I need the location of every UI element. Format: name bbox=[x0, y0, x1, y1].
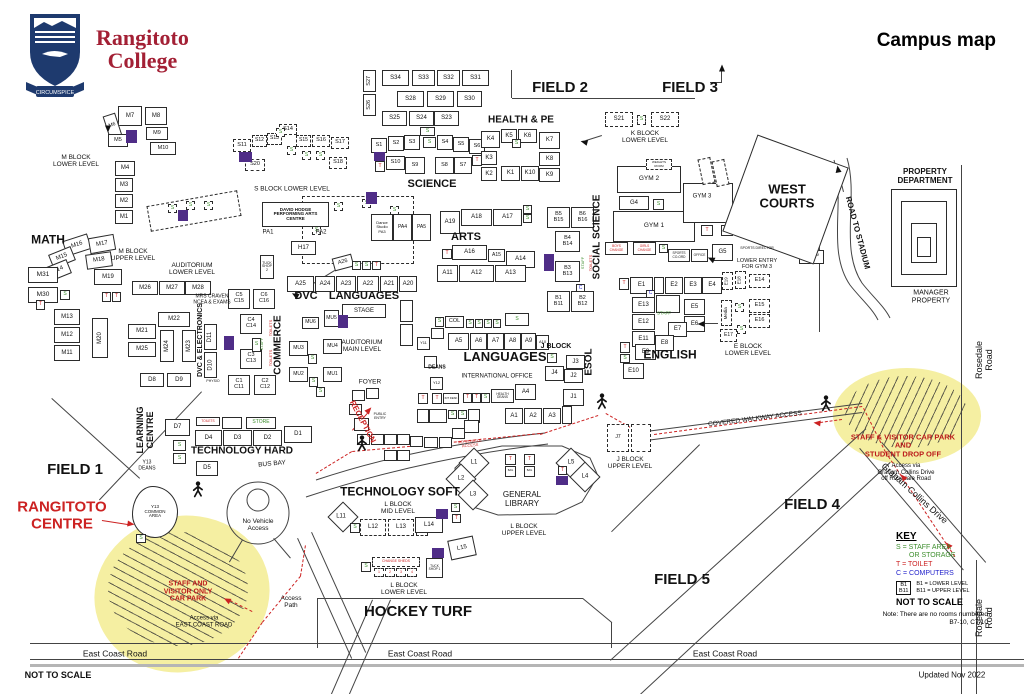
room-s: S bbox=[316, 151, 325, 160]
room-s: S bbox=[505, 313, 529, 326]
room-s: S bbox=[737, 325, 746, 334]
room-s: S bbox=[493, 319, 501, 328]
room-a13: A13 bbox=[495, 265, 526, 282]
room-m2: M2 bbox=[115, 194, 133, 208]
room-s22: S22 bbox=[651, 112, 679, 127]
room-mu3: MU3 bbox=[289, 341, 308, 356]
label-l-block-lower-level: L BLOCK LOWER LEVEL bbox=[381, 582, 427, 596]
room-s: S bbox=[458, 410, 467, 419]
room-c4-c14: C4 C14 bbox=[240, 314, 262, 334]
room-d11: D11 bbox=[204, 324, 217, 350]
label-staff: STAFF bbox=[260, 338, 264, 350]
road-line bbox=[30, 659, 1024, 660]
label-field-2: FIELD 2 bbox=[532, 80, 588, 97]
room-a2: A2 bbox=[524, 408, 542, 424]
room-a12: A12 bbox=[459, 265, 494, 282]
room-bag: BAG bbox=[524, 466, 535, 477]
room-a17: A17 bbox=[493, 209, 522, 226]
key-lower: B1 = LOWER LEVEL bbox=[916, 581, 968, 587]
room-y11: Y11 bbox=[417, 337, 430, 350]
label-k-block-lower-level: K BLOCK LOWER LEVEL bbox=[622, 130, 668, 144]
room-mu4: MU4 bbox=[323, 339, 342, 354]
room-t: T bbox=[620, 342, 630, 353]
room-l13: L13 bbox=[388, 519, 414, 536]
room-s: S bbox=[653, 199, 664, 210]
school-logo: CIRCUMSPICE Rangitoto College bbox=[24, 10, 189, 102]
label-arts: ARTS bbox=[451, 231, 481, 243]
room-c2-c12: C2 C12 bbox=[254, 375, 276, 395]
room-s: S bbox=[309, 377, 318, 387]
room-s26: S26 bbox=[363, 94, 376, 116]
room-s: S bbox=[481, 393, 490, 403]
room-e5: E5 bbox=[684, 299, 705, 315]
label-not-to-scale: NOT TO SCALE bbox=[25, 671, 92, 681]
room-t: T bbox=[701, 225, 713, 236]
room-s3: S3 bbox=[404, 135, 420, 150]
label-j-block-upper-level: J BLOCK UPPER LEVEL bbox=[608, 456, 652, 470]
room-d3: D3 bbox=[223, 430, 252, 446]
room-media: Media bbox=[721, 300, 732, 326]
label-s-block-lower-level: S BLOCK LOWER LEVEL bbox=[254, 185, 330, 192]
road-line bbox=[704, 323, 718, 324]
room-d9: D9 bbox=[167, 373, 191, 387]
room-d1: D1 bbox=[284, 426, 312, 443]
room-4: 4 bbox=[407, 568, 417, 577]
room-dance-studio-pa3: Dance Studio PA3 bbox=[371, 214, 393, 241]
label-east-coast-road: East Coast Road bbox=[693, 649, 757, 658]
room-s34: S34 bbox=[382, 70, 409, 86]
label-english: ENGLISH bbox=[643, 348, 696, 361]
road-line bbox=[512, 98, 695, 99]
room-k7: K7 bbox=[539, 132, 560, 149]
room-s: S bbox=[659, 244, 668, 253]
room-m25: M25 bbox=[128, 342, 156, 357]
room-girls-change: GIRLS CHANGE bbox=[633, 242, 656, 255]
lift-marker bbox=[374, 152, 385, 161]
label-field-1: FIELD 1 bbox=[47, 462, 103, 479]
road-line bbox=[317, 598, 318, 648]
room-m3: M3 bbox=[115, 178, 133, 192]
room-t: T bbox=[36, 300, 45, 310]
room-m4: M4 bbox=[115, 161, 135, 176]
room-s27: S27 bbox=[363, 70, 376, 92]
building-box bbox=[562, 406, 572, 424]
label-deans: DEANS bbox=[428, 365, 446, 371]
label-rangitoto-centre: RANGITOTO CENTRE bbox=[17, 500, 106, 533]
building-box bbox=[222, 417, 242, 429]
room-m22: M22 bbox=[158, 312, 190, 327]
label-l5: L5 bbox=[568, 460, 575, 467]
room-boys-change: BOYS CHANGE bbox=[605, 242, 628, 255]
label-y13-deans: Y13 DEANS bbox=[138, 461, 155, 472]
key-toilet: T = TOILET bbox=[896, 561, 998, 570]
room-t: T bbox=[442, 249, 452, 259]
label-math: MATH bbox=[31, 233, 65, 246]
label-auditorium-lower-level: AUDITORIUM LOWER LEVEL bbox=[169, 262, 215, 276]
room-s15: S15 bbox=[296, 135, 311, 147]
room-mu5: MU5 bbox=[324, 310, 339, 327]
room-e2: E2 bbox=[665, 277, 683, 294]
room-s: S bbox=[352, 261, 361, 270]
label-staff-and-visitor-only-car-park: STAFF AND VISITOR ONLY CAR PARK bbox=[164, 580, 213, 603]
room-a4: A4 bbox=[515, 384, 536, 400]
room-s21: S21 bbox=[605, 112, 633, 127]
room-s: S bbox=[308, 354, 317, 364]
lift-marker bbox=[436, 509, 448, 519]
room-s12: S12 bbox=[252, 135, 267, 147]
campus-map-canvas: CIRCUMSPICE Rangitoto College Campus map… bbox=[0, 0, 1024, 694]
room-s: S bbox=[287, 146, 296, 155]
label-sports-director: SPORTS DIRECTOR bbox=[740, 247, 774, 251]
label-staff-visitor-car-park-and-student-drop-off: STAFF & VISITOR CAR PARK AND STUDENT DRO… bbox=[851, 434, 955, 459]
room-a15: A15 bbox=[488, 249, 505, 262]
building-box bbox=[464, 420, 479, 433]
room-mu6: MU6 bbox=[302, 317, 319, 329]
room-2: 2 bbox=[385, 568, 395, 577]
room-g5: G5 bbox=[712, 244, 733, 261]
room-s16: S16 bbox=[312, 135, 330, 147]
room-e3: E3 bbox=[684, 277, 702, 294]
key-not-to-scale: NOT TO SCALE bbox=[896, 597, 998, 608]
room-s2: S2 bbox=[388, 136, 404, 151]
room-m11: M11 bbox=[54, 345, 80, 361]
room-health-deans: HEALTH DEANS bbox=[491, 389, 514, 403]
label-manager-property: MANAGER PROPERTY bbox=[912, 289, 950, 304]
room-a9: A9 bbox=[521, 333, 536, 350]
room-a16: A16 bbox=[452, 245, 487, 260]
building-box bbox=[384, 434, 397, 445]
room-t: T bbox=[102, 292, 111, 302]
label-international-office: INTERNATIONAL OFFICE bbox=[461, 374, 532, 381]
room-s4: S4 bbox=[437, 135, 453, 150]
arrow-icon bbox=[127, 521, 135, 528]
room-t: T bbox=[619, 278, 629, 290]
room-s: S bbox=[435, 317, 444, 327]
label-field-5: FIELD 5 bbox=[654, 572, 710, 589]
room-pa4: PA4 bbox=[393, 214, 412, 241]
label-field-4: FIELD 4 bbox=[784, 497, 840, 514]
label-rosedale-road: Rosedale Road bbox=[975, 341, 995, 380]
label-auditorium-main-level: AUDITORIUM MAIN LEVEL bbox=[341, 339, 382, 353]
room-t: T bbox=[558, 466, 567, 475]
building-box bbox=[631, 424, 651, 452]
label-staff: STAFF bbox=[657, 312, 671, 317]
room-change-sheds: CHANGE SHEDS bbox=[372, 557, 420, 567]
room-c1-c11: C1 C11 bbox=[228, 375, 250, 395]
room-s: S bbox=[475, 319, 483, 328]
label-access-path: Access Path bbox=[281, 595, 302, 609]
label-languages: LANGUAGES bbox=[463, 350, 546, 364]
room-s29: S29 bbox=[427, 91, 454, 107]
room-store: STORE bbox=[246, 417, 276, 429]
pedestrian-icon bbox=[192, 481, 205, 503]
room-s: S bbox=[334, 202, 343, 211]
room-a11: A11 bbox=[437, 265, 458, 282]
label-languages: LANGUAGES bbox=[329, 290, 399, 302]
room-int-desk: INT DESK bbox=[443, 393, 459, 404]
building-box bbox=[384, 450, 397, 461]
arrow-icon bbox=[105, 126, 111, 133]
label-l1: L1 bbox=[471, 460, 478, 467]
room-s24: S24 bbox=[409, 111, 434, 126]
room-s: S bbox=[361, 562, 371, 572]
building-box bbox=[400, 300, 413, 322]
room-s33: S33 bbox=[412, 70, 435, 86]
crest-motto: CIRCUMSPICE bbox=[36, 90, 75, 96]
room-c5-c15: C5 C15 bbox=[228, 289, 250, 309]
room-e17: E17 bbox=[720, 329, 737, 342]
room-m8: M8 bbox=[145, 107, 167, 125]
room-s1: S1 bbox=[371, 138, 387, 153]
room-sports-co-ord: SPORTS CO-ORD bbox=[668, 249, 690, 262]
room-s: S bbox=[735, 303, 744, 312]
room-s25: S25 bbox=[382, 111, 407, 126]
key-staff: S = STAFF AREA bbox=[896, 544, 998, 553]
room-s28: S28 bbox=[397, 91, 424, 107]
label-toilets: TOILETS bbox=[589, 255, 593, 272]
room-pa5: PA5 bbox=[412, 214, 431, 241]
label-mrs-craven-ncea-exams: MRS CRAVEN NCEA & EXAMS bbox=[193, 295, 230, 306]
label-technology-soft: TECHNOLOGY SOFT bbox=[340, 485, 460, 498]
label-west-courts: WEST COURTS bbox=[760, 183, 815, 212]
label-j-block: J BLOCK bbox=[541, 343, 572, 351]
label-commerce: COMMERCE bbox=[273, 315, 284, 374]
label-learning-centre: LEARNING CENTRE bbox=[136, 407, 156, 454]
room-a1: A1 bbox=[505, 408, 523, 424]
room-m23: M23 bbox=[182, 330, 196, 362]
label-pa1: PA1 bbox=[263, 230, 274, 237]
label-pa2: PA2 bbox=[316, 230, 327, 237]
room-s: S bbox=[423, 137, 436, 148]
room-l14: L14 bbox=[415, 517, 443, 533]
room-m20: M20 bbox=[92, 318, 108, 358]
building-box bbox=[397, 450, 410, 461]
room-k3: K3 bbox=[481, 151, 497, 165]
label-field-3: FIELD 3 bbox=[662, 80, 718, 97]
room-t: T bbox=[372, 261, 381, 270]
room-m9: M9 bbox=[146, 127, 168, 140]
room-t: T bbox=[505, 454, 516, 465]
building-box bbox=[683, 183, 733, 223]
room-s: S bbox=[451, 503, 460, 512]
room-s: S bbox=[466, 319, 474, 328]
room-g4: G4 bbox=[619, 196, 649, 210]
room-mu2: MU2 bbox=[289, 367, 308, 382]
lift-marker bbox=[544, 254, 554, 271]
pedestrian-icon bbox=[356, 435, 369, 457]
room-1: 1 bbox=[374, 568, 384, 577]
label-technology-hard: TECHNOLOGY HARD bbox=[191, 446, 293, 457]
lift-marker bbox=[126, 130, 137, 143]
label-foyer: FOYER bbox=[359, 378, 381, 385]
building-box bbox=[366, 388, 379, 399]
room-e15: E15 bbox=[749, 299, 770, 313]
label-l4: L4 bbox=[582, 474, 589, 481]
key-level-box: B1B11 bbox=[896, 581, 911, 595]
building-box bbox=[431, 328, 444, 339]
room-m21: M21 bbox=[128, 324, 156, 339]
room-s10: S10 bbox=[386, 156, 405, 170]
room-m7: M7 bbox=[118, 106, 142, 126]
room-t: T bbox=[463, 393, 472, 403]
map-key: KEY S = STAFF AREA OR STORAGE T = TOILET… bbox=[868, 531, 998, 627]
room-s: S bbox=[136, 534, 146, 543]
room-b1-b11: B1 B11 bbox=[547, 291, 570, 312]
room-s17: S17 bbox=[331, 137, 349, 149]
lift-marker bbox=[178, 210, 188, 221]
road-line bbox=[721, 71, 722, 82]
room-b4-b14: B4 B14 bbox=[555, 231, 580, 252]
lift-marker bbox=[224, 336, 234, 350]
room-david-hodge-performing-arts-centre: DAVID HODGE PERFORMING ARTS CENTRE bbox=[262, 202, 329, 227]
building-box bbox=[654, 277, 664, 294]
bus-bay-roundabout bbox=[227, 482, 289, 544]
room-s: S bbox=[173, 440, 186, 451]
room-s8: S8 bbox=[435, 157, 454, 174]
label-l3: L3 bbox=[470, 492, 477, 499]
room-c3-c13: C3 C13 bbox=[240, 349, 262, 369]
room-d5: D5 bbox=[196, 461, 218, 476]
label-no-vehicle-access: No Vehicle Access bbox=[242, 518, 273, 532]
room-t: T bbox=[418, 393, 428, 404]
room-s: S bbox=[512, 139, 521, 148]
room-t: T bbox=[472, 393, 481, 403]
room-a5: A5 bbox=[448, 333, 469, 350]
lift-marker bbox=[338, 315, 348, 328]
lift-marker bbox=[556, 476, 568, 485]
key-upper: B11 = UPPER LEVEL bbox=[916, 588, 969, 594]
room-a20: A20 bbox=[399, 276, 417, 292]
room-m10: M10 bbox=[150, 142, 176, 155]
label-lower-entry-for-gym-3: LOWER ENTRY FOR GYM 3 bbox=[737, 258, 777, 270]
room-k2: K2 bbox=[481, 167, 497, 181]
room-k10: K10 bbox=[521, 166, 539, 181]
room-y12: Y12 bbox=[430, 377, 443, 390]
room-k4: K4 bbox=[481, 131, 500, 148]
room-s9: S9 bbox=[405, 157, 425, 174]
room-s: S bbox=[173, 453, 186, 464]
room-s: S bbox=[620, 354, 630, 363]
room-m1: M1 bbox=[115, 210, 133, 224]
room-s23: S23 bbox=[434, 111, 459, 126]
label-m-block-lower-level: M BLOCK LOWER LEVEL bbox=[53, 154, 99, 168]
room-col: COL bbox=[445, 316, 464, 328]
room-a8: A8 bbox=[504, 333, 521, 350]
room-s: S bbox=[350, 523, 360, 533]
room-b2-b12: B2 B12 bbox=[571, 291, 594, 312]
arrow-icon bbox=[698, 321, 705, 327]
room-y13-common-area: Y13 COMMON AREA bbox=[132, 486, 178, 538]
room-s: S bbox=[523, 205, 532, 214]
building-box bbox=[410, 436, 423, 447]
road-line bbox=[30, 664, 1024, 667]
room-s: S bbox=[186, 201, 195, 210]
lift-marker bbox=[239, 152, 252, 162]
building-box bbox=[400, 324, 413, 346]
room-j1: J1 bbox=[563, 389, 584, 406]
room-a18: A18 bbox=[461, 209, 492, 226]
road-line bbox=[511, 70, 512, 98]
room-s: S bbox=[276, 128, 285, 137]
room-s: S bbox=[302, 151, 311, 160]
label-physio: PHYSIO bbox=[206, 380, 219, 384]
label-l11: L11 bbox=[336, 514, 346, 521]
room-e16: E16 bbox=[749, 314, 770, 328]
building-box bbox=[417, 409, 429, 423]
label-updated-nov-2022: Updated Nov 2022 bbox=[919, 672, 986, 681]
arrow-icon bbox=[834, 165, 841, 173]
room-s: S bbox=[204, 201, 213, 210]
label-gym-3: GYM 3 bbox=[693, 194, 712, 201]
room-s: S bbox=[420, 127, 435, 136]
label-public-entry: PUBLIC ENTRY bbox=[374, 413, 387, 421]
school-name: Rangitoto College bbox=[96, 26, 189, 102]
room-a7: A7 bbox=[487, 333, 504, 350]
room-3: 3 bbox=[396, 568, 406, 577]
road-line bbox=[30, 643, 1010, 644]
room-e4: E4 bbox=[702, 277, 722, 294]
arrow-icon bbox=[813, 420, 821, 427]
room-tuck-shop-1: TUCK SHOP 1 bbox=[426, 558, 443, 578]
label-esol: ESOL bbox=[584, 348, 595, 375]
room-b3-b13: B3 B13 bbox=[555, 261, 580, 282]
room-s: S bbox=[316, 387, 325, 397]
room-m26: M26 bbox=[132, 281, 158, 295]
room-s5: S5 bbox=[453, 137, 469, 152]
room-bag: BAG bbox=[505, 466, 516, 477]
label-l2: L2 bbox=[458, 476, 465, 483]
room-t: T bbox=[524, 454, 535, 465]
label-hockey-turf: HOCKEY TURF bbox=[364, 604, 472, 621]
room-h17: H17 bbox=[291, 241, 316, 255]
room-d4: D4 bbox=[195, 430, 222, 446]
room-e13: E13 bbox=[632, 297, 655, 313]
label-access-via-graham-collins-drive-off-rosedale-road: Access via Graham Collins Drive off Rose… bbox=[877, 463, 934, 483]
room-e19: E19 bbox=[722, 272, 733, 290]
room-k9: K9 bbox=[539, 168, 560, 182]
room-t: T bbox=[452, 514, 461, 523]
room-t: T bbox=[112, 292, 121, 302]
key-storage: OR STORAGE bbox=[896, 552, 998, 561]
room-s32: S32 bbox=[437, 70, 460, 86]
label-l-block-mid-level: L BLOCK MID LEVEL bbox=[381, 501, 415, 515]
room-m5: M5 bbox=[108, 134, 128, 147]
label-science: SCIENCE bbox=[408, 178, 457, 190]
room-e10: E10 bbox=[623, 363, 644, 379]
room-m24: M24 bbox=[160, 330, 174, 362]
pedestrian-icon bbox=[596, 393, 609, 415]
label-general-library: GENERAL LIBRARY bbox=[503, 491, 541, 509]
room-j2: J2 bbox=[564, 369, 583, 383]
label-east-coast-road: East Coast Road bbox=[388, 649, 452, 658]
building-box bbox=[397, 434, 410, 445]
page-title: Campus map bbox=[877, 30, 996, 52]
label-access-via-east-coast-road: Access via EAST COAST ROAD bbox=[176, 615, 233, 628]
arrow-icon bbox=[719, 65, 725, 72]
room-s: S bbox=[362, 261, 371, 270]
lift-marker bbox=[366, 192, 377, 204]
room-j4: J4 bbox=[545, 366, 564, 381]
room-t: T bbox=[432, 393, 442, 404]
room-k1: K1 bbox=[501, 166, 520, 181]
room-stage: STAGE bbox=[342, 304, 386, 318]
label-e-block-lower-level: E BLOCK LOWER LEVEL bbox=[725, 343, 771, 357]
room-k8: K8 bbox=[539, 152, 560, 166]
room-gym-2: GYM 2 bbox=[617, 166, 681, 193]
room-s31: S31 bbox=[462, 70, 489, 86]
building-box bbox=[429, 409, 447, 423]
label-toilets: TOILETS bbox=[269, 320, 273, 337]
